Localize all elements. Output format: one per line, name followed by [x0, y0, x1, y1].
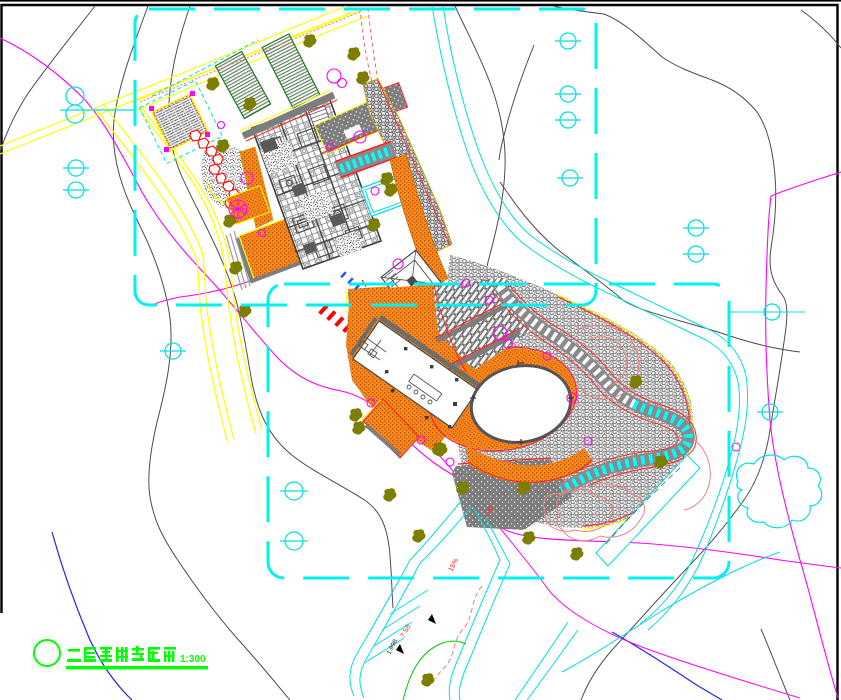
svg-text:1:300: 1:300 [180, 654, 206, 665]
